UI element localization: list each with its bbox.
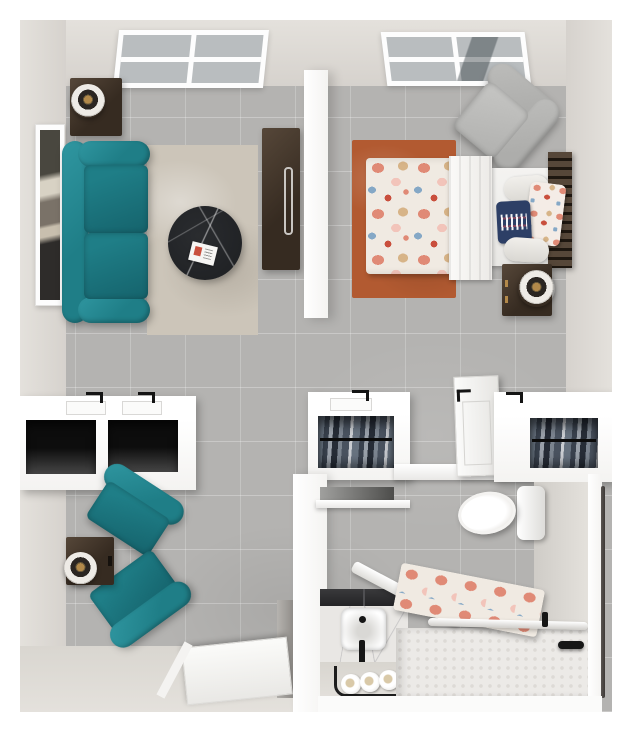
counter-pull-handle (138, 392, 155, 403)
border-bottom (0, 712, 632, 733)
rod-mount (542, 612, 548, 627)
teal-sofa (62, 141, 150, 323)
border-right (612, 0, 632, 733)
left-wall (20, 20, 66, 700)
mirror-strip (320, 487, 394, 501)
counter-pull-handle (86, 392, 103, 403)
closet-pull-handle (352, 390, 369, 401)
rolled-towel (341, 674, 361, 694)
door-lever-handle (457, 389, 471, 401)
bed (366, 152, 572, 282)
toilet-tank (517, 486, 545, 540)
window-mullion-horizontal (121, 57, 262, 62)
cabinet-handle (284, 167, 293, 235)
magazine-text (203, 248, 213, 260)
closet-hanging-clothes (318, 416, 394, 468)
closet-rod (532, 439, 596, 442)
floral-comforter (366, 158, 458, 274)
open-entry-door (181, 637, 292, 706)
roll-in-shower-floor (396, 628, 588, 698)
sofa-cushion-bottom (84, 233, 148, 299)
art-canvas (40, 130, 60, 300)
paper-tray (122, 401, 162, 415)
central-dividing-wall (304, 70, 328, 318)
living-table-lamp (71, 84, 105, 118)
border-top (0, 0, 632, 20)
table-handle (108, 556, 112, 566)
open-cabinet-bay (26, 420, 96, 474)
bolster-pillow-bottom (503, 236, 550, 263)
rolled-towel (360, 672, 380, 692)
sofa-arm-bottom (78, 297, 150, 323)
closet-pull-handle (506, 392, 523, 403)
white-throw-blanket (449, 156, 492, 280)
closet-rod (320, 438, 392, 441)
bathroom-shelf (316, 500, 410, 508)
paper-tray (66, 401, 106, 415)
floorplan-image (0, 0, 632, 733)
den-ring-lamp (64, 552, 97, 585)
bedroom-ring-lamp (518, 270, 555, 307)
bathroom-right-wall (588, 474, 602, 712)
black-grab-bar (558, 641, 584, 649)
counter-seam (363, 589, 365, 606)
round-coffee-table (168, 206, 242, 280)
magazine-print (193, 246, 202, 256)
bathroom-bottom-wall (318, 696, 602, 712)
door-panel-inset (462, 401, 492, 466)
tall-dark-cabinet (262, 128, 300, 270)
closet-hanging-clothes (530, 418, 598, 468)
pillow-zigzag-pattern (501, 213, 528, 230)
vertical-grab-rail (601, 486, 605, 698)
sofa-cushion-top (84, 165, 148, 233)
living-room-window (113, 30, 269, 88)
border-left (0, 0, 20, 733)
framed-wall-art (35, 124, 65, 306)
nightstand-pull (505, 280, 508, 287)
nightstand-pull (505, 296, 508, 303)
sofa-arm-top (78, 141, 150, 167)
sink-drain (359, 616, 366, 623)
